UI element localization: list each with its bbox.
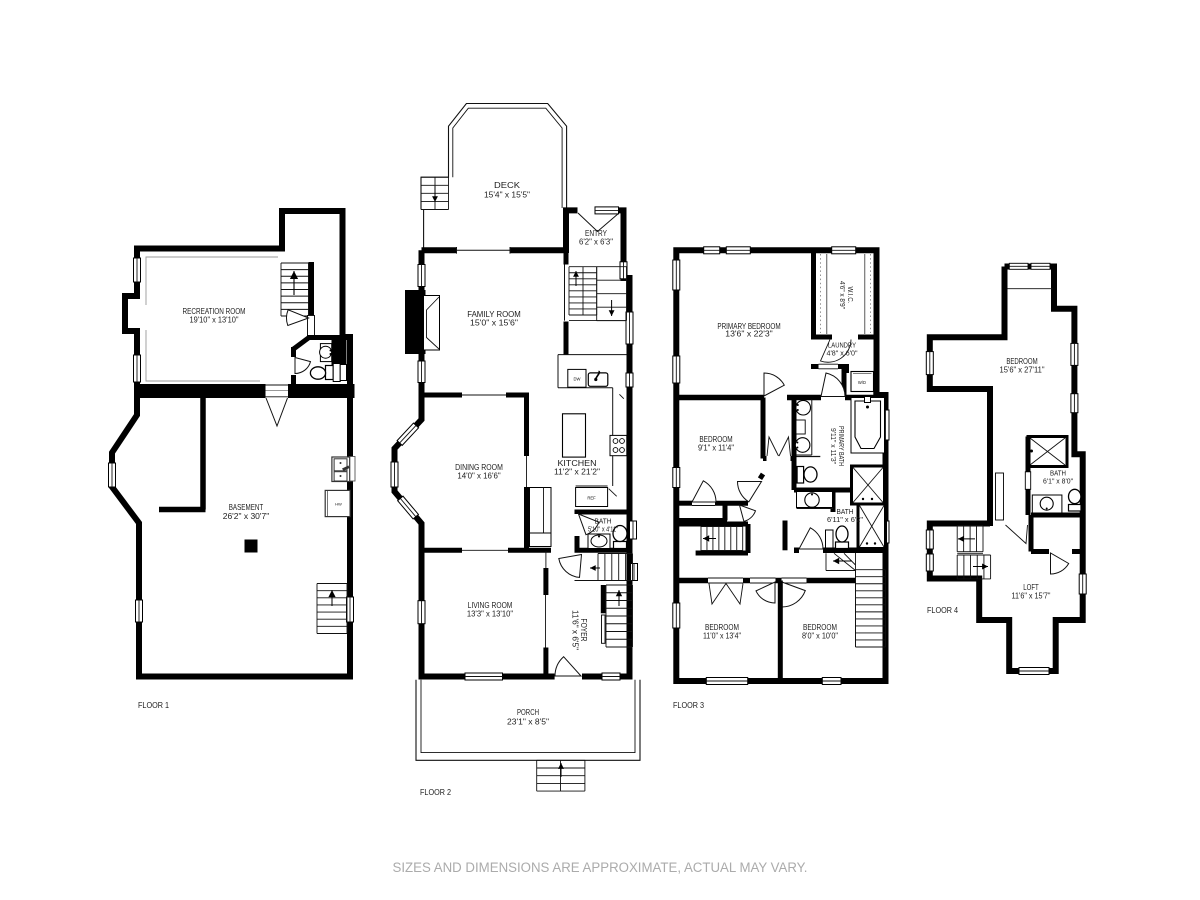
svg-text:DECK: DECK: [494, 181, 521, 190]
svg-text:BASEMENT: BASEMENT: [229, 503, 264, 512]
svg-text:11'6" x 15'7": 11'6" x 15'7": [1012, 592, 1051, 601]
svg-text:FLOOR 3: FLOOR 3: [673, 700, 704, 710]
svg-text:11'2" x 21'2": 11'2" x 21'2": [554, 468, 600, 477]
svg-text:FLOOR 1: FLOOR 1: [138, 700, 169, 710]
svg-text:19'10" x 13'10": 19'10" x 13'10": [190, 316, 239, 325]
svg-text:11'0" x 13'4": 11'0" x 13'4": [703, 632, 741, 641]
svg-text:14'0" x 16'6": 14'0" x 16'6": [457, 472, 500, 481]
svg-text:4'6" x 8'9": 4'6" x 8'9": [838, 281, 847, 309]
svg-text:SIZES AND DIMENSIONS ARE APPRO: SIZES AND DIMENSIONS ARE APPROXIMATE, AC…: [393, 860, 808, 875]
svg-text:15'0" x 15'6": 15'0" x 15'6": [470, 319, 518, 328]
svg-text:9'1" x 11'4": 9'1" x 11'4": [698, 444, 734, 453]
svg-text:FLOOR 4: FLOOR 4: [927, 605, 958, 615]
svg-text:6'11" x 6'2": 6'11" x 6'2": [827, 515, 863, 524]
svg-text:REF: REF: [587, 496, 596, 501]
svg-text:HW: HW: [335, 502, 342, 507]
svg-text:26'2" x 30'7": 26'2" x 30'7": [223, 512, 270, 521]
svg-text:23'1" x 8'5": 23'1" x 8'5": [507, 718, 549, 727]
svg-text:15'6" x 27'11": 15'6" x 27'11": [1000, 366, 1045, 375]
svg-text:6'1" x 8'0": 6'1" x 8'0": [1043, 477, 1073, 486]
svg-text:11'6" x 6'5": 11'6" x 6'5": [571, 610, 580, 650]
svg-text:4'8" x 6'0": 4'8" x 6'0": [827, 349, 858, 358]
svg-text:8'0" x 10'0": 8'0" x 10'0": [802, 632, 838, 641]
svg-text:6'2" x 6'3": 6'2" x 6'3": [579, 238, 613, 247]
svg-text:FLOOR 2: FLOOR 2: [420, 787, 451, 797]
svg-text:13'3" x 13'10": 13'3" x 13'10": [467, 610, 513, 619]
svg-text:9'11" x 11'3": 9'11" x 11'3": [829, 428, 838, 464]
svg-text:13'6" x 22'3": 13'6" x 22'3": [725, 330, 773, 339]
svg-text:W/D: W/D: [858, 380, 866, 385]
svg-text:15'4" x 15'5": 15'4" x 15'5": [484, 191, 530, 200]
svg-text:PORCH: PORCH: [517, 708, 539, 717]
svg-text:DW: DW: [574, 377, 581, 382]
svg-text:5'10" x 4'11": 5'10" x 4'11": [588, 525, 618, 534]
